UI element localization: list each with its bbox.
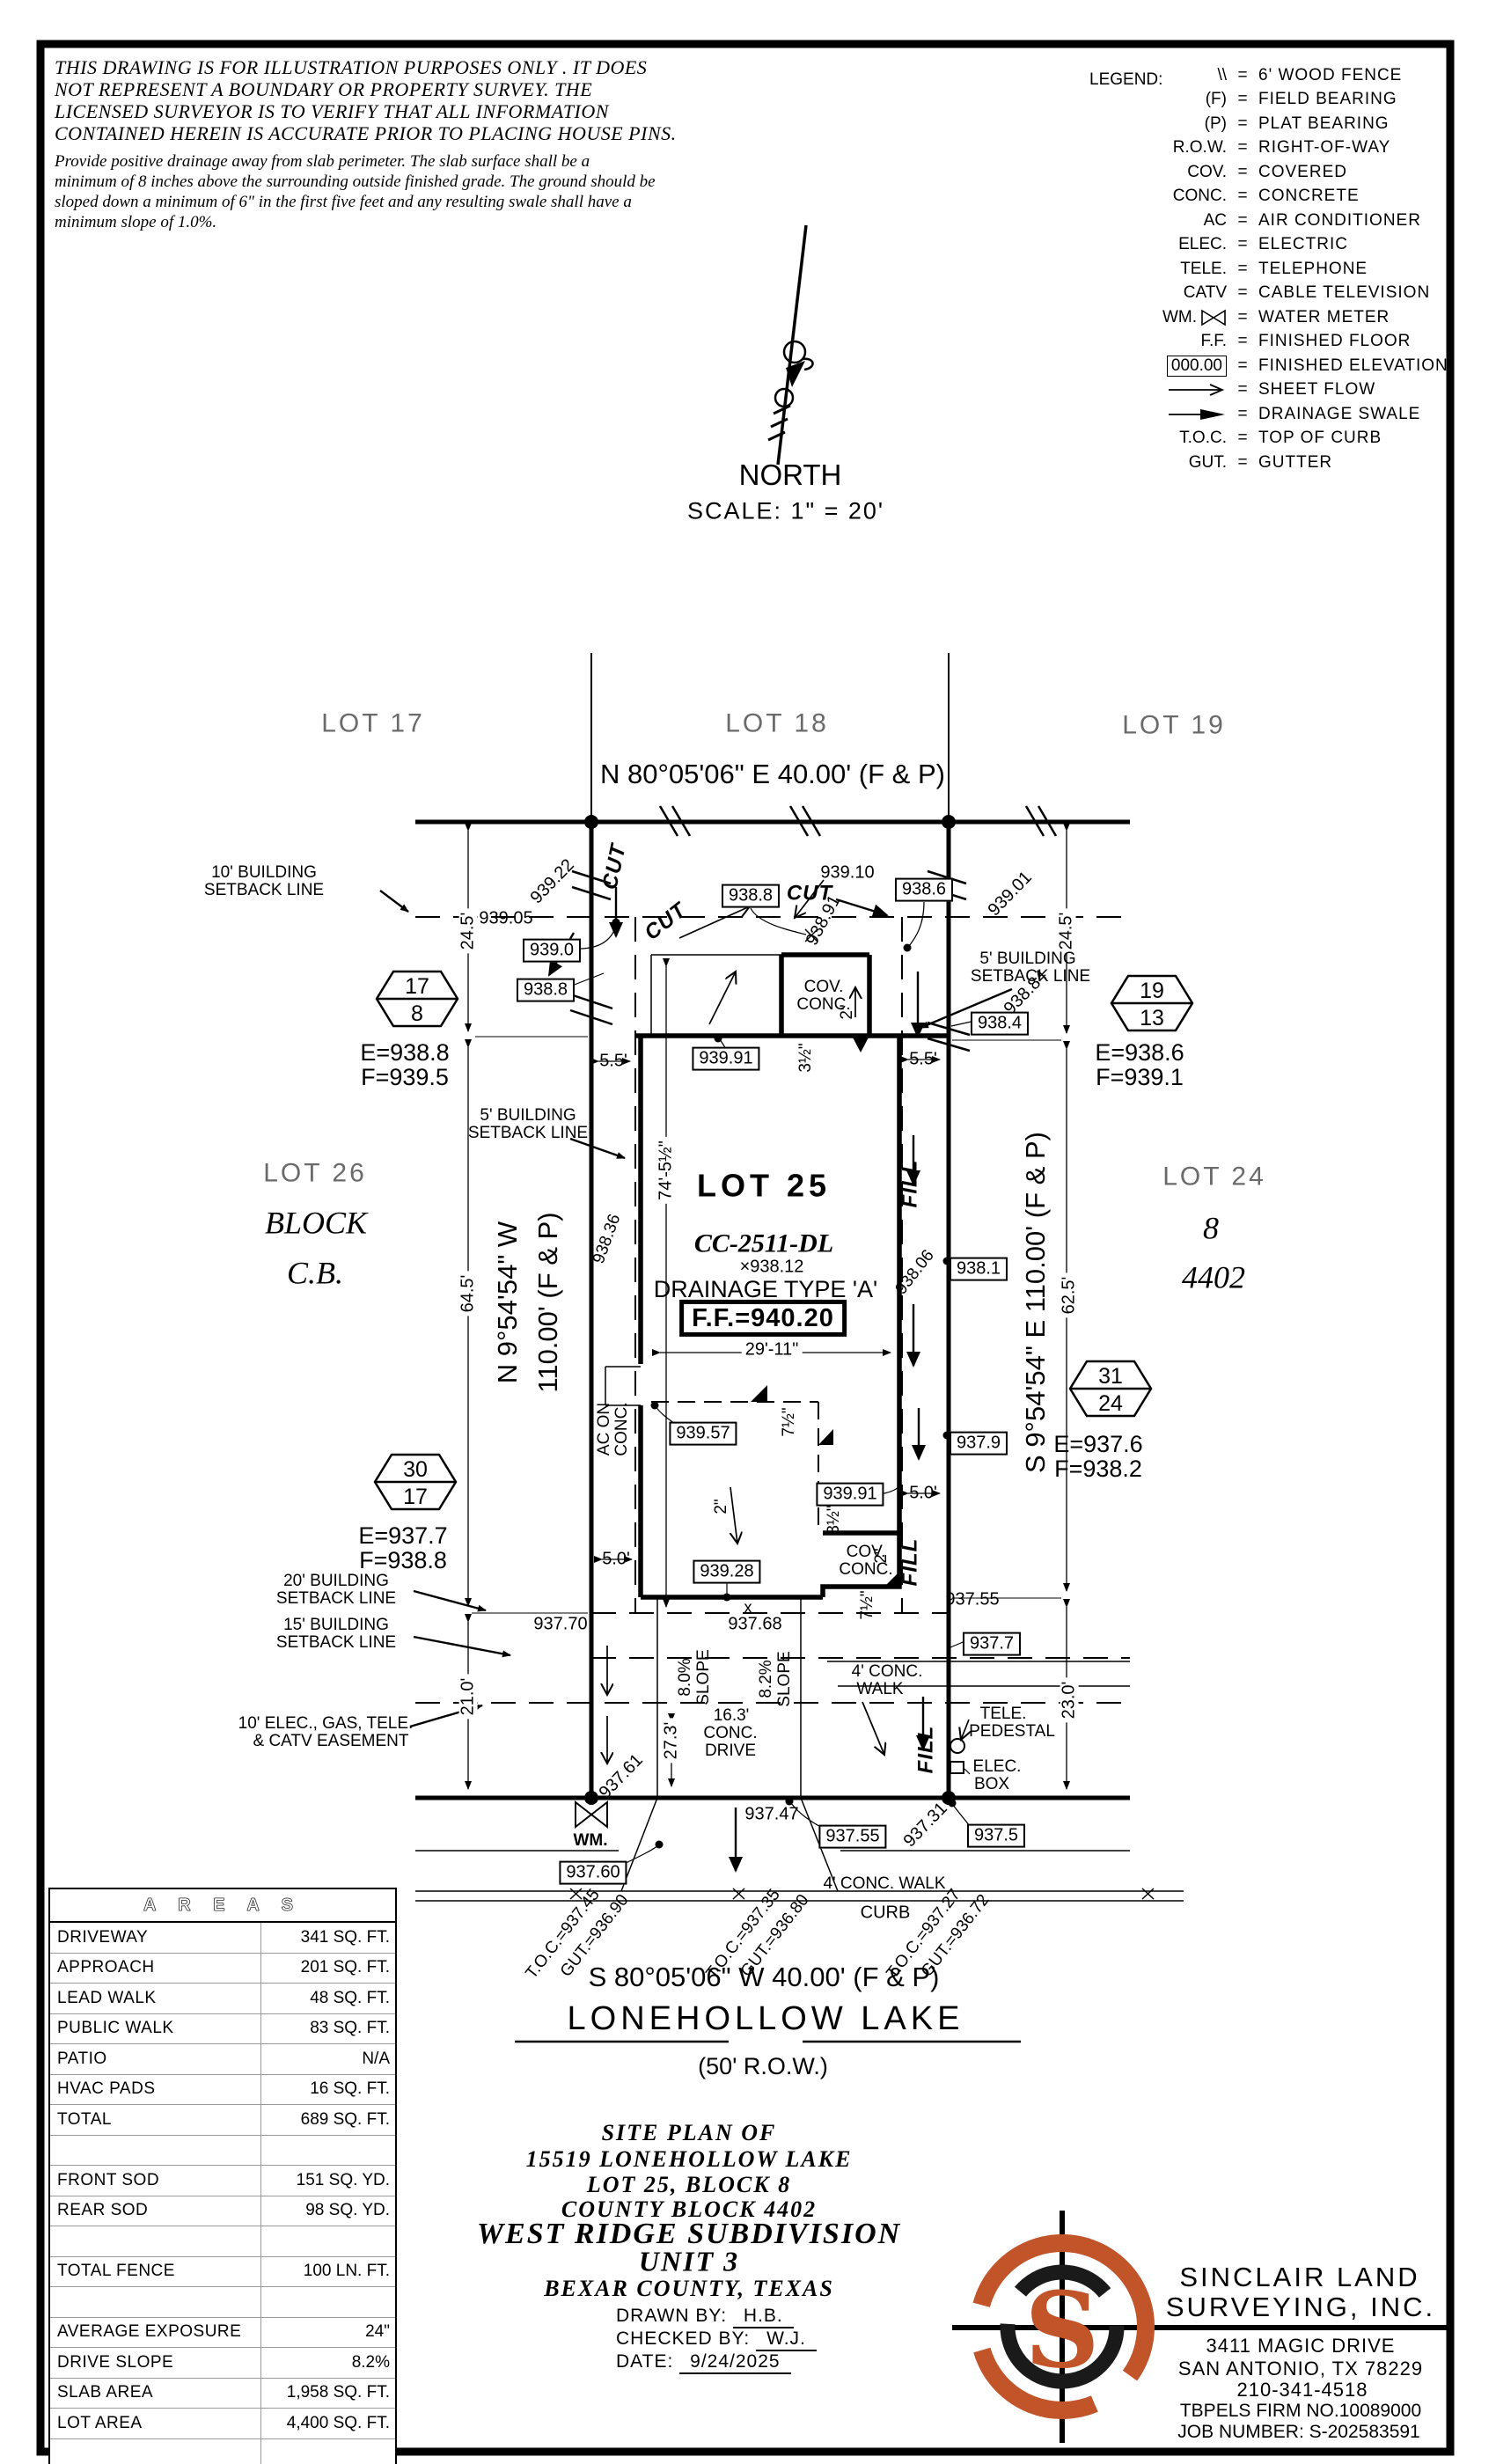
legend-symbol-text: \\ <box>1217 66 1227 85</box>
legend-item: GUT.=GUTTER <box>1125 451 1450 475</box>
elev-939-91-b: 939.91 <box>816 1483 884 1507</box>
elec-box-icon <box>950 1762 964 1773</box>
areas-row-value: 16 SQ. FT. <box>260 2075 395 2105</box>
hex-19-13-bottom: 13 <box>1140 1007 1164 1030</box>
disclaimer-line: NOT REPRESENT A BOUNDARY OR PROPERTY SUR… <box>55 78 677 100</box>
legend-equals: = <box>1227 90 1258 109</box>
setback-5l-line2: SETBACK LINE <box>468 1125 588 1142</box>
legend-item-label: ELECTRIC <box>1258 235 1450 254</box>
disclaimer-line: CONTAINED HEREIN IS ACCURATE PRIOR TO PL… <box>55 122 677 144</box>
elev-937-7: 937.7 <box>963 1632 1021 1656</box>
walk-label-lower: 4' CONC. WALK <box>823 1875 945 1893</box>
legend-equals: = <box>1227 235 1258 254</box>
block-8-label: 8 <box>1203 1212 1219 1244</box>
areas-row-label: FRONT SOD <box>50 2171 260 2190</box>
areas-table-row <box>50 2226 395 2256</box>
surveyor-phone: 210-341-4518 <box>1236 2379 1368 2402</box>
cov-conc-bottom-2: CONC. <box>839 1561 892 1579</box>
legend-item: CONC.=CONCRETE <box>1125 185 1450 209</box>
legend-symbol: \\ <box>1125 66 1227 85</box>
hex-17-8-f: F=939.5 <box>361 1065 449 1089</box>
legend-symbol: ELEC. <box>1125 235 1227 254</box>
areas-row-label: PATIO <box>50 2050 260 2069</box>
hex-19-13-top: 19 <box>1140 979 1164 1002</box>
legend-equals: = <box>1227 356 1258 376</box>
elec-box-line2: BOX <box>974 1776 1009 1793</box>
legend-item-label: FINISHED ELEVATION <box>1258 356 1450 376</box>
legend-equals: = <box>1227 163 1258 182</box>
legend-equals: = <box>1227 114 1258 134</box>
legend-symbol: T.O.C. <box>1125 429 1227 448</box>
drive-label-1: 16.3' <box>714 1707 750 1725</box>
areas-row-value <box>260 2439 395 2464</box>
areas-row-value: 1,958 SQ. FT. <box>260 2379 395 2409</box>
lot-26-label: LOT 26 <box>263 1159 367 1186</box>
dim-27-3: 27.3' <box>663 1719 681 1764</box>
areas-table-row: PATION/A <box>50 2043 395 2074</box>
areas-row-value: 341 SQ. FT. <box>260 1923 395 1953</box>
areas-row-value: 201 SQ. FT. <box>260 1954 395 1984</box>
title-block-line: SITE PLAN OF <box>602 2120 777 2146</box>
fill-label-1: FILL <box>900 1160 922 1208</box>
water-meter-icon <box>1200 309 1227 326</box>
drawn-by-label: DRAWN BY: <box>616 2306 727 2326</box>
legend-item-label: SHEET FLOW <box>1258 380 1450 400</box>
areas-table-row: SLAB AREA1,958 SQ. FT. <box>50 2378 395 2409</box>
areas-row-value <box>260 2226 395 2256</box>
legend-symbol-text: T.O.C. <box>1179 429 1227 448</box>
lot-18-label: LOT 18 <box>725 709 829 737</box>
hex-31-24-e: E=937.6 <box>1053 1432 1142 1456</box>
setback-10-line1: 10' BUILDING <box>211 864 317 882</box>
areas-row-label: REAR SOD <box>50 2201 260 2220</box>
legend-item-label: GUTTER <box>1258 453 1450 473</box>
legend-equals: = <box>1227 453 1258 473</box>
setback-10-line2: SETBACK LINE <box>204 882 324 899</box>
hex-30-17-bottom: 17 <box>403 1485 428 1508</box>
legend-item-label: 6' WOOD FENCE <box>1258 66 1450 85</box>
surveyor-name-1: SINCLAIR LAND <box>1179 2262 1419 2293</box>
setback-15-line2: SETBACK LINE <box>276 1634 396 1652</box>
areas-row-label: PUBLIC WALK <box>50 2019 260 2038</box>
disclaimer-line: Provide positive drainage away from slab… <box>55 151 656 172</box>
legend-symbol: TELE. <box>1125 260 1227 279</box>
ac-pad-line2: CONC. <box>613 1402 631 1456</box>
drive-slope-1b: SLOPE <box>695 1649 713 1705</box>
dim-3half-b: 3½" <box>825 1505 843 1534</box>
legend-item-label: TOP OF CURB <box>1258 429 1450 448</box>
title-block-line: BEXAR COUNTY, TEXAS <box>544 2276 834 2302</box>
county-block-4402: 4402 <box>1182 1261 1245 1294</box>
title-block-line: LOT 25, BLOCK 8 <box>587 2172 791 2198</box>
setback-20-line2: SETBACK LINE <box>276 1590 396 1608</box>
dim-3half-a: 3½" <box>797 1043 815 1072</box>
easement-line1: 10' ELEC., GAS, TELE. <box>238 1715 414 1733</box>
title-block-line: UNIT 3 <box>639 2246 739 2278</box>
disclaimer-line: minimum of 8 inches above the surroundin… <box>55 172 656 192</box>
areas-row-value: 83 SQ. FT. <box>260 2014 395 2044</box>
elev-938-6: 938.6 <box>895 878 953 902</box>
legend-symbol: GUT. <box>1125 453 1227 473</box>
elev-937-55-bottom: 937.55 <box>818 1825 886 1849</box>
surveyor-job-number: JOB NUMBER: S-202583591 <box>1177 2422 1419 2443</box>
dim-21-0-left: 21.0' <box>459 1675 478 1720</box>
areas-row-value <box>260 2136 395 2166</box>
drive-slope-1a: 8.0% <box>677 1658 694 1696</box>
cov-conc-top-2: CONC. <box>796 996 850 1014</box>
areas-table-row: TOTAL689 SQ. FT. <box>50 2104 395 2135</box>
hex-17-8-e: E=938.8 <box>360 1040 449 1065</box>
dim-29-11: 29'-11" <box>742 1341 803 1360</box>
lot-25-label: LOT 25 <box>697 1169 831 1201</box>
leader-lines <box>572 902 975 1866</box>
elev-939-10: 939.10 <box>820 864 874 883</box>
block-label: BLOCK <box>265 1206 367 1239</box>
legend-symbol: COV. <box>1125 163 1227 182</box>
hex-17-8-top: 17 <box>405 975 429 998</box>
hex-31-24-bottom: 24 <box>1098 1392 1123 1415</box>
setback-20-line1: 20' BUILDING <box>283 1573 389 1590</box>
elev-939-28: 939.28 <box>693 1560 760 1584</box>
elev-938-1: 938.1 <box>950 1258 1008 1281</box>
legend-item: (P)=PLAT BEARING <box>1125 112 1450 136</box>
areas-row-value: 100 LN. FT. <box>260 2257 395 2287</box>
drainage-swale-icon <box>1169 408 1227 421</box>
dim-2in-b: 2" <box>713 1499 730 1514</box>
dim-24-5-left: 24.5' <box>459 909 478 954</box>
dim-5-0-left: 5.0' <box>602 1551 630 1569</box>
drive-slope-2a: 8.2% <box>758 1660 775 1698</box>
west-bearing-line2: 110.00' (F & P) <box>534 1212 562 1392</box>
legend-equals: = <box>1227 260 1258 279</box>
areas-table-row: DRIVE SLOPE8.2% <box>50 2347 395 2378</box>
north-arrow-icon <box>768 225 813 465</box>
date-row: DATE: 9/24/2025 <box>616 2351 791 2372</box>
spot-elevation-dots <box>612 919 957 1849</box>
dim-62-5-right: 62.5' <box>1060 1273 1079 1318</box>
legend-item-label: CONCRETE <box>1258 187 1450 206</box>
legend-equals: = <box>1227 138 1258 158</box>
elev-937-70: 937.70 <box>533 1616 587 1634</box>
elev-937-68: 937.68 <box>728 1616 781 1634</box>
fill-label-3: FILL <box>916 1726 938 1774</box>
areas-table-row: APPROACH201 SQ. FT. <box>50 1953 395 1984</box>
legend-symbol: (F) <box>1125 90 1227 109</box>
legend-equals: = <box>1227 380 1258 400</box>
areas-row-label: TOTAL FENCE <box>50 2262 260 2281</box>
legend-equals: = <box>1227 332 1258 351</box>
hex-30-17-e: E=937.7 <box>358 1523 447 1548</box>
legend-item-label: PLAT BEARING <box>1258 114 1450 134</box>
checked-by-label: CHECKED BY: <box>616 2328 750 2349</box>
legend-symbol <box>1125 408 1227 421</box>
legend-symbol-text: TELE. <box>1180 260 1227 279</box>
legend-item: \\=6' WOOD FENCE <box>1125 63 1450 88</box>
hex-19-13-e: E=938.6 <box>1095 1040 1184 1065</box>
legend-item: =SHEET FLOW <box>1125 378 1450 403</box>
county-block-label: C.B. <box>287 1257 343 1289</box>
tele-pedestal-line2: PEDESTAL <box>969 1723 1055 1741</box>
legend-item: =DRAINAGE SWALE <box>1125 402 1450 427</box>
areas-table-row <box>50 2286 395 2317</box>
disclaimer-paragraph-1: THIS DRAWING IS FOR ILLUSTRATION PURPOSE… <box>55 56 677 144</box>
legend-item: COV.=COVERED <box>1125 160 1450 185</box>
finished-floor-elev: F.F.=940.20 <box>679 1300 847 1337</box>
areas-table-row: REAR SOD98 SQ. YD. <box>50 2196 395 2226</box>
disclaimer-line: THIS DRAWING IS FOR ILLUSTRATION PURPOSE… <box>55 56 677 78</box>
legend-symbol-text: ELEC. <box>1178 235 1227 254</box>
drive-and-walk-lines <box>415 955 1184 1901</box>
areas-table-row <box>50 2438 395 2464</box>
areas-table-row <box>50 2135 395 2166</box>
legend-symbol-text: (F) <box>1206 90 1227 109</box>
cov-conc-bottom-1: COV. <box>847 1544 886 1561</box>
dim-24-5-right: 24.5' <box>1058 909 1076 954</box>
north-label: NORTH <box>739 458 842 492</box>
checked-by-row: CHECKED BY: W.J. <box>616 2328 817 2350</box>
drive-label-2: CONC. <box>703 1725 757 1742</box>
legend-equals: = <box>1227 187 1258 206</box>
legend-symbol: (P) <box>1125 114 1227 134</box>
north-bearing: N 80°05'06" E 40.00' (F & P) <box>600 760 945 788</box>
dim-7half-b: 7½" <box>859 1590 876 1619</box>
legend-equals: = <box>1227 308 1258 327</box>
legend-symbol-text: R.O.W. <box>1173 138 1227 158</box>
water-meter-label: WM. <box>573 1832 607 1850</box>
elev-939-91-a: 939.91 <box>692 1047 759 1071</box>
legend-item-label: CABLE TELEVISION <box>1258 283 1450 303</box>
disclaimer-line: minimum slope of 1.0%. <box>55 212 656 232</box>
legend-item-label: DRAINAGE SWALE <box>1258 405 1450 424</box>
dim-23-0-right: 23.0' <box>1060 1678 1079 1723</box>
legend-item: F.F.=FINISHED FLOOR <box>1125 330 1450 355</box>
elev-937-5: 937.5 <box>967 1824 1025 1848</box>
lot-17-label: LOT 17 <box>321 709 425 737</box>
hex-31-24-f: F=938.2 <box>1054 1456 1142 1481</box>
spot-x-937-68: x <box>744 1600 752 1617</box>
surveyor-address: 3411 MAGIC DRIVE <box>1206 2335 1396 2358</box>
legend-symbol: 000.00 <box>1125 356 1227 377</box>
areas-row-label: AVERAGE EXPOSURE <box>50 2322 260 2342</box>
checked-by-value: W.J. <box>756 2328 817 2351</box>
legend-symbol: WM. <box>1125 308 1227 327</box>
elev-939-0: 939.0 <box>523 939 581 963</box>
ac-pad-line1: AC ON <box>596 1403 613 1456</box>
finished-elevation-box: 000.00 <box>1167 356 1227 377</box>
fill-label-2: FILL <box>900 1538 922 1587</box>
legend-symbol-text: GUT. <box>1189 453 1227 473</box>
street-name: LONEHOLLOW LAKE <box>568 2002 964 2037</box>
areas-row-label: SLAB AREA <box>50 2383 260 2402</box>
cov-conc-top-1: COV. <box>804 979 844 996</box>
legend-symbol-text: (P) <box>1205 114 1227 134</box>
dim-64-5-left: 64.5' <box>459 1272 478 1316</box>
elev-937-60: 937.60 <box>559 1861 627 1885</box>
setback-5l-line1: 5' BUILDING <box>480 1107 576 1125</box>
areas-table-row: DRIVEWAY341 SQ. FT. <box>50 1923 395 1953</box>
legend-symbol-text: COV. <box>1187 163 1227 182</box>
legend-symbol: R.O.W. <box>1125 138 1227 158</box>
elev-938-8-left: 938.8 <box>517 979 575 1002</box>
legend-symbol-text: F.F. <box>1200 332 1227 351</box>
tele-pedestal-icon <box>950 1739 964 1753</box>
disclaimer-line: LICENSED SURVEYOR IS TO VERIFY THAT ALL … <box>55 100 677 122</box>
hex-30-17-f: F=938.8 <box>359 1548 447 1573</box>
legend-item: R.O.W.=RIGHT-OF-WAY <box>1125 136 1450 161</box>
legend-symbol: AC <box>1125 211 1227 231</box>
legend-item: WM.=WATER METER <box>1125 305 1450 330</box>
hex-30-17-top: 30 <box>403 1458 428 1481</box>
date-label: DATE: <box>616 2351 673 2372</box>
drawn-by-row: DRAWN BY: H.B. <box>616 2306 794 2327</box>
legend-item: TELE.=TELEPHONE <box>1125 257 1450 282</box>
legend-equals: = <box>1227 211 1258 231</box>
legend-item-label: FIELD BEARING <box>1258 90 1450 109</box>
walk-label-upper-1: 4' CONC. <box>852 1663 923 1681</box>
dim-5-5-right: 5.5' <box>909 1051 937 1069</box>
legend-item: ELEC.=ELECTRIC <box>1125 233 1450 258</box>
drainage-type: DRAINAGE TYPE 'A' <box>654 1277 877 1302</box>
legend-symbol: CATV <box>1125 283 1227 303</box>
elev-938-8-mid: 938.8 <box>722 884 780 908</box>
legend-symbol <box>1125 384 1227 396</box>
scale-label: SCALE: 1" = 20' <box>687 498 884 525</box>
areas-row-value: 24" <box>260 2318 395 2348</box>
areas-row-label: TOTAL <box>50 2110 260 2130</box>
elev-937-55-right: 937.55 <box>945 1591 999 1610</box>
legend-item-label: FINISHED FLOOR <box>1258 332 1450 351</box>
areas-table-row: LOT AREA4,400 SQ. FT. <box>50 2408 395 2438</box>
areas-row-label: HVAC PADS <box>50 2079 260 2099</box>
areas-row-label: APPROACH <box>50 1958 260 1977</box>
dim-74-5half: 74'-5½" <box>657 1137 676 1204</box>
cut-label-2: CUT <box>787 884 832 906</box>
legend-equals: = <box>1227 429 1258 448</box>
legend-item: AC=AIR CONDITIONER <box>1125 209 1450 233</box>
setback-5r-line1: 5' BUILDING <box>979 950 1075 968</box>
areas-table-row: AVERAGE EXPOSURE24" <box>50 2317 395 2348</box>
areas-table-row: HVAC PADS16 SQ. FT. <box>50 2074 395 2105</box>
water-meter-icon <box>576 1802 607 1827</box>
easement-line2: & CATV EASEMENT <box>253 1733 408 1750</box>
plan-code: CC-2511-DL <box>694 1229 833 1257</box>
elev-939-05: 939.05 <box>479 910 532 928</box>
spot-elev-938-12: ×938.12 <box>740 1258 804 1277</box>
areas-row-value <box>260 2287 395 2317</box>
disclaimer-line: sloped down a minimum of 6" in the first… <box>55 192 656 212</box>
drainage-note-paragraph: Provide positive drainage away from slab… <box>55 151 656 232</box>
dim-7half-a: 7½" <box>781 1407 798 1436</box>
areas-table-row: LEAD WALK48 SQ. FT. <box>50 1983 395 2013</box>
surveyor-name-2: SURVEYING, INC. <box>1166 2292 1435 2323</box>
logo-letter: S <box>1024 2270 1099 2392</box>
areas-row-value: N/A <box>260 2044 395 2074</box>
hex-31-24-top: 31 <box>1098 1365 1123 1388</box>
legend-item-label: COVERED <box>1258 163 1450 182</box>
areas-row-label: DRIVE SLOPE <box>50 2353 260 2372</box>
legend-item: (F)=FIELD BEARING <box>1125 88 1450 113</box>
elev-939-57: 939.57 <box>669 1422 737 1446</box>
areas-table-row: FRONT SOD151 SQ. YD. <box>50 2165 395 2196</box>
hex-19-13-f: F=939.1 <box>1096 1065 1184 1089</box>
areas-row-value: 151 SQ. YD. <box>260 2166 395 2196</box>
tele-pedestal-line1: TELE. <box>980 1705 1027 1723</box>
lot-19-label: LOT 19 <box>1122 711 1226 738</box>
legend-symbol-text: AC <box>1204 211 1227 231</box>
areas-table-title: A R E A S <box>50 1889 395 1923</box>
surveyor-firm: TBPELS FIRM NO.10089000 <box>1180 2401 1421 2422</box>
title-block-line: 15519 LONEHOLLOW LAKE <box>526 2146 853 2173</box>
dim-5-5-left: 5.5' <box>599 1052 627 1071</box>
drive-label-3: DRIVE <box>705 1742 756 1760</box>
legend-symbol: F.F. <box>1125 332 1227 351</box>
elev-937-9: 937.9 <box>950 1432 1008 1456</box>
sheet-flow-icon <box>1169 384 1227 396</box>
legend-symbol-text: WM. <box>1162 308 1197 327</box>
areas-row-label: LOT AREA <box>50 2414 260 2433</box>
legend-symbol-text: CONC. <box>1173 187 1227 206</box>
curb-label: CURB <box>861 1904 911 1923</box>
lot-24-label: LOT 24 <box>1162 1162 1266 1190</box>
legend-equals: = <box>1227 66 1258 85</box>
surveyor-city: SAN ANTONIO, TX 78229 <box>1178 2358 1423 2380</box>
areas-row-value: 4,400 SQ. FT. <box>260 2409 395 2438</box>
areas-row-value: 98 SQ. YD. <box>260 2196 395 2226</box>
legend: \\=6' WOOD FENCE(F)=FIELD BEARING(P)=PLA… <box>1125 63 1450 475</box>
legend-equals: = <box>1227 283 1258 303</box>
elev-937-47: 937.47 <box>744 1806 798 1824</box>
areas-row-value: 8.2% <box>260 2348 395 2378</box>
areas-table-row: TOTAL FENCE100 LN. FT. <box>50 2256 395 2287</box>
walk-label-upper-2: WALK <box>856 1681 903 1698</box>
west-bearing-line1: N 9°54'54" W <box>494 1221 522 1383</box>
legend-item: 000.00=FINISHED ELEVATION <box>1125 354 1450 378</box>
areas-row-label: DRIVEWAY <box>50 1928 260 1947</box>
legend-symbol: CONC. <box>1125 187 1227 206</box>
legend-symbol-text: CATV <box>1184 283 1227 303</box>
site-plan-sheet: THIS DRAWING IS FOR ILLUSTRATION PURPOSE… <box>0 0 1496 2464</box>
areas-row-value: 689 SQ. FT. <box>260 2105 395 2135</box>
legend-item: T.O.C.=TOP OF CURB <box>1125 427 1450 451</box>
elec-box-line1: ELEC. <box>973 1758 1022 1776</box>
east-bearing: S 9°54'54" E 110.00' (F & P) <box>1022 1132 1050 1473</box>
row-width: (50' R.O.W.) <box>698 2054 828 2079</box>
areas-row-value: 48 SQ. FT. <box>260 1984 395 2013</box>
legend-equals: = <box>1227 405 1258 424</box>
legend-item-label: TELEPHONE <box>1258 260 1450 279</box>
drive-slope-2b: SLOPE <box>776 1651 794 1706</box>
dim-5-0-right: 5.0' <box>909 1485 937 1503</box>
legend-item-label: RIGHT-OF-WAY <box>1258 138 1450 158</box>
legend-item-label: AIR CONDITIONER <box>1258 211 1450 231</box>
setback-15-line1: 15' BUILDING <box>283 1617 389 1634</box>
legend-item: CATV=CABLE TELEVISION <box>1125 282 1450 306</box>
drawn-by-value: H.B. <box>733 2306 794 2328</box>
date-value: 9/24/2025 <box>679 2351 790 2374</box>
areas-table: A R E A S DRIVEWAY341 SQ. FT.APPROACH201… <box>48 1888 397 2464</box>
elev-938-4: 938.4 <box>971 1012 1029 1036</box>
legend-item-label: WATER METER <box>1258 308 1450 327</box>
hex-17-8-bottom: 8 <box>411 1002 423 1025</box>
areas-table-row: PUBLIC WALK83 SQ. FT. <box>50 2013 395 2044</box>
areas-row-label: LEAD WALK <box>50 1989 260 2008</box>
